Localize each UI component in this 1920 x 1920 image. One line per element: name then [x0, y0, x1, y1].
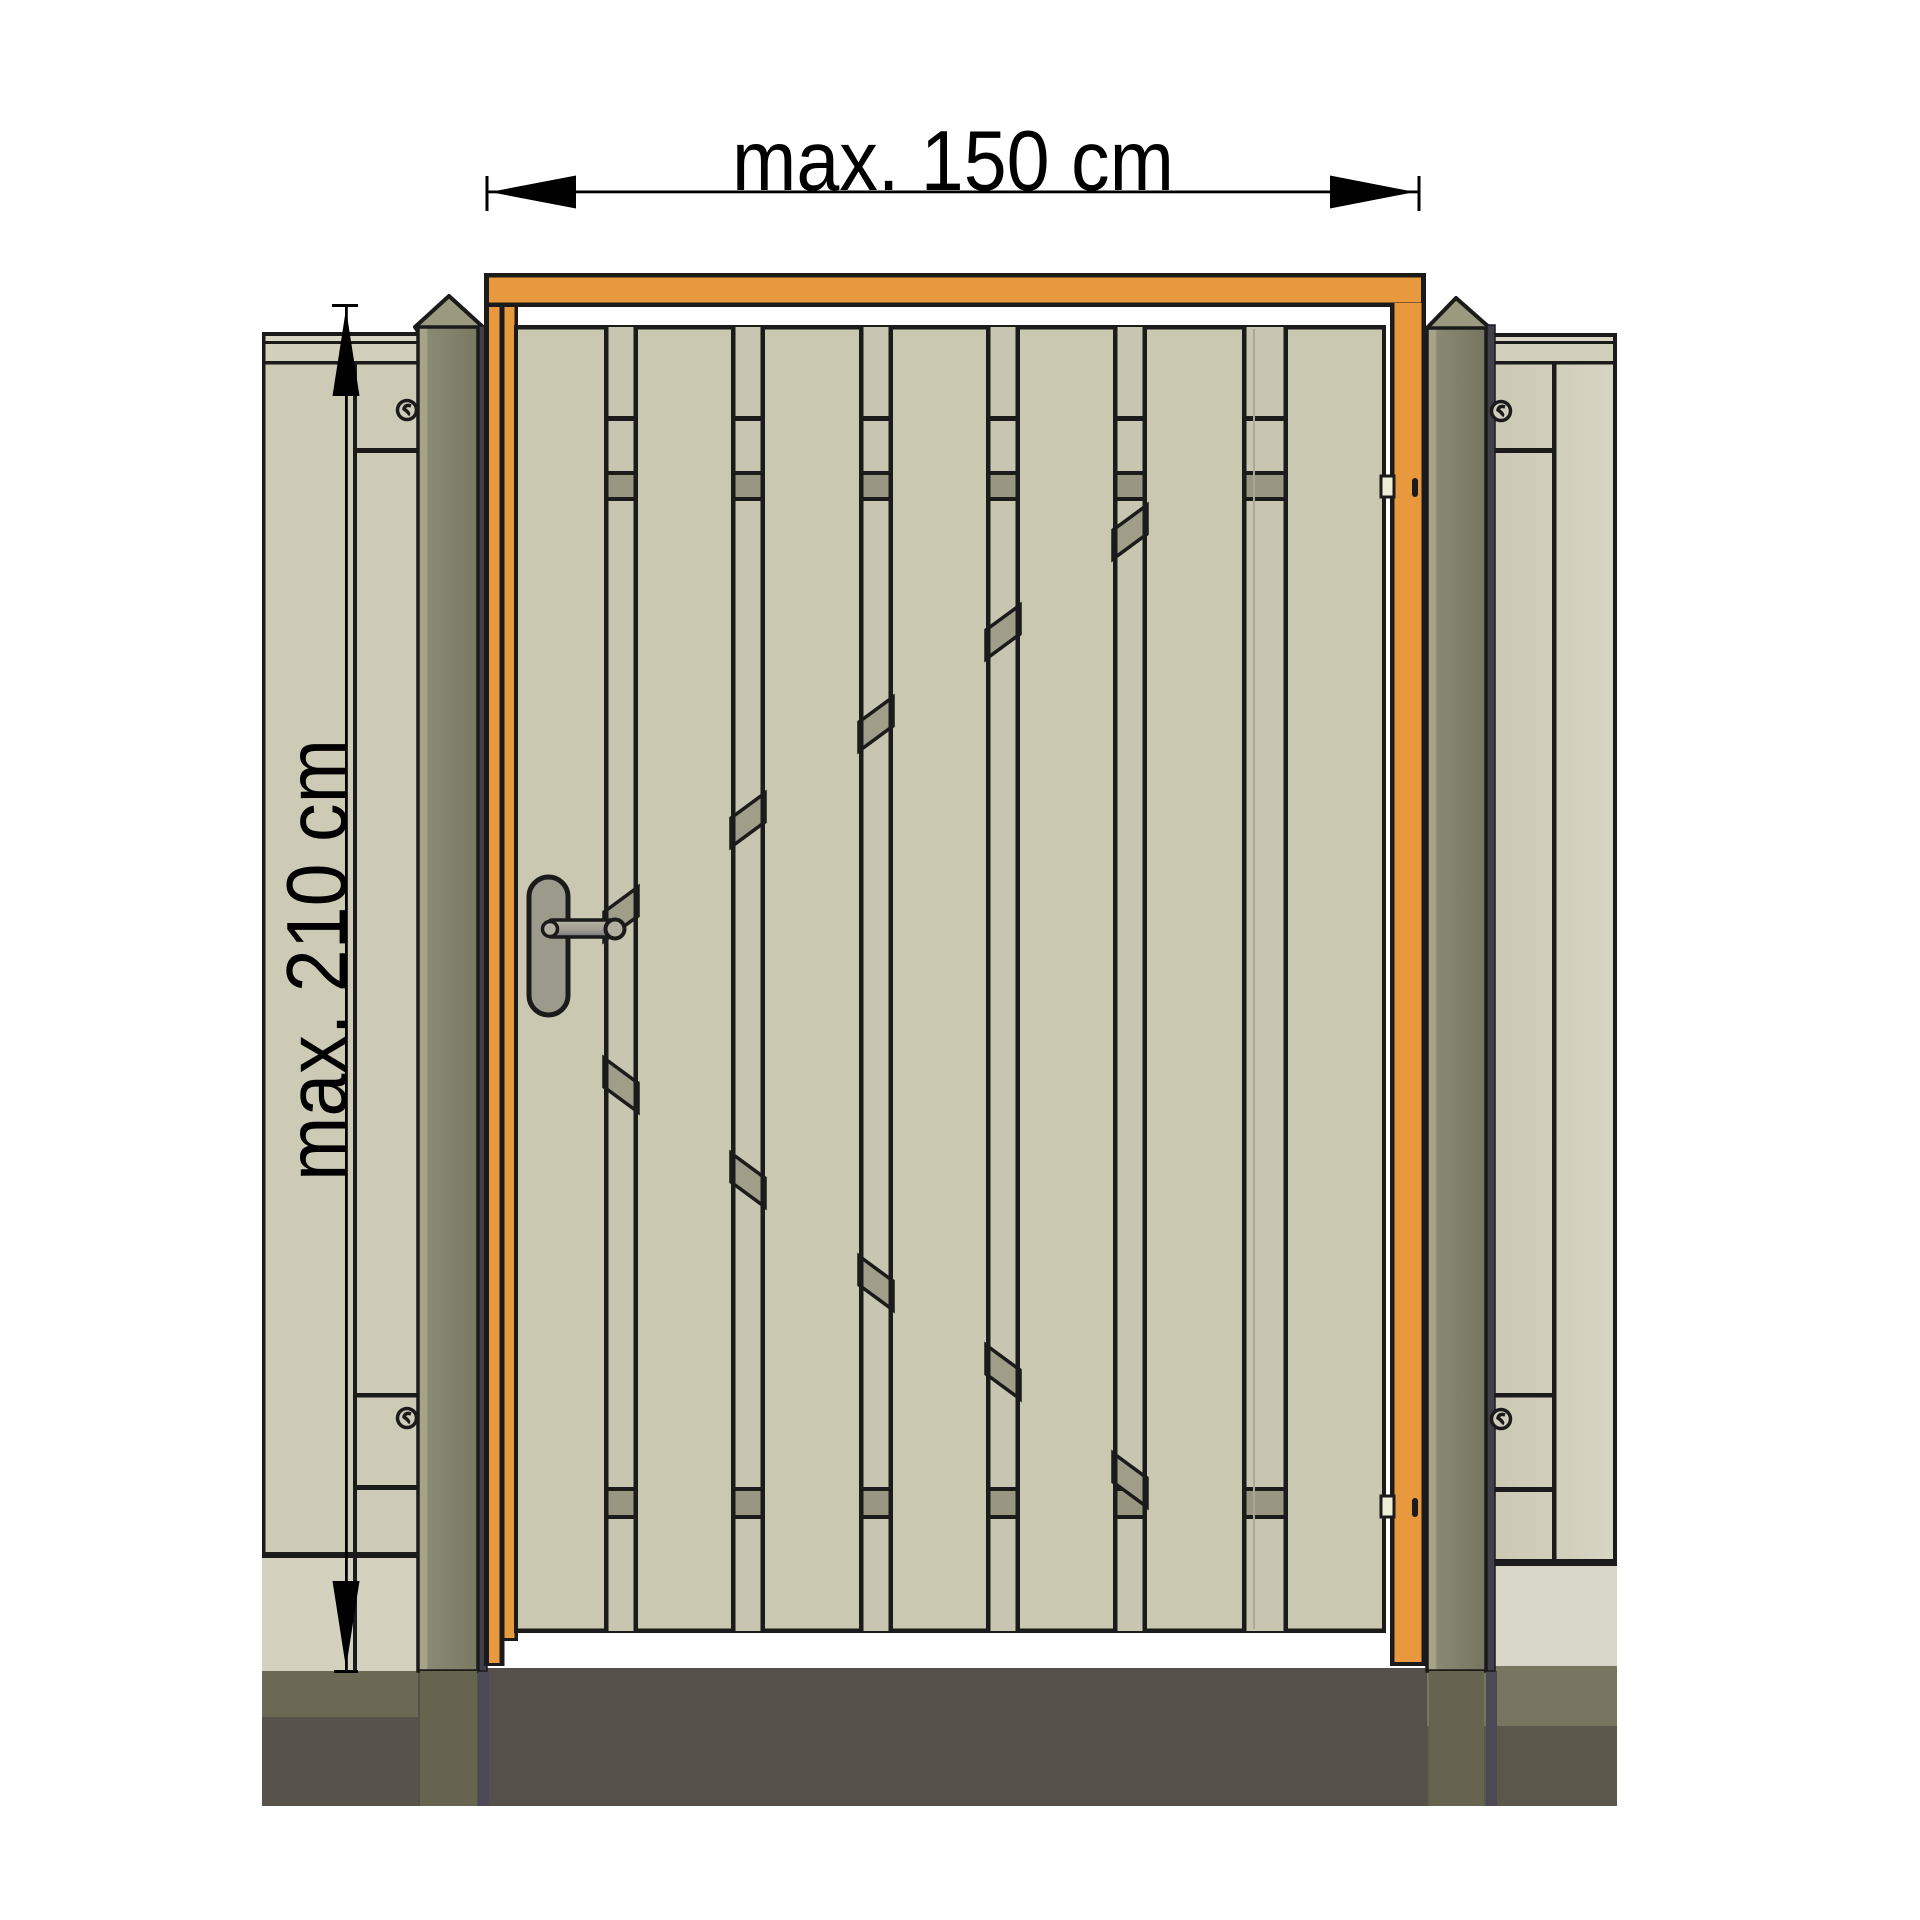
svg-text:max. 210 cm: max. 210 cm — [270, 739, 365, 1181]
svg-text:max. 150 cm: max. 150 cm — [732, 114, 1174, 209]
